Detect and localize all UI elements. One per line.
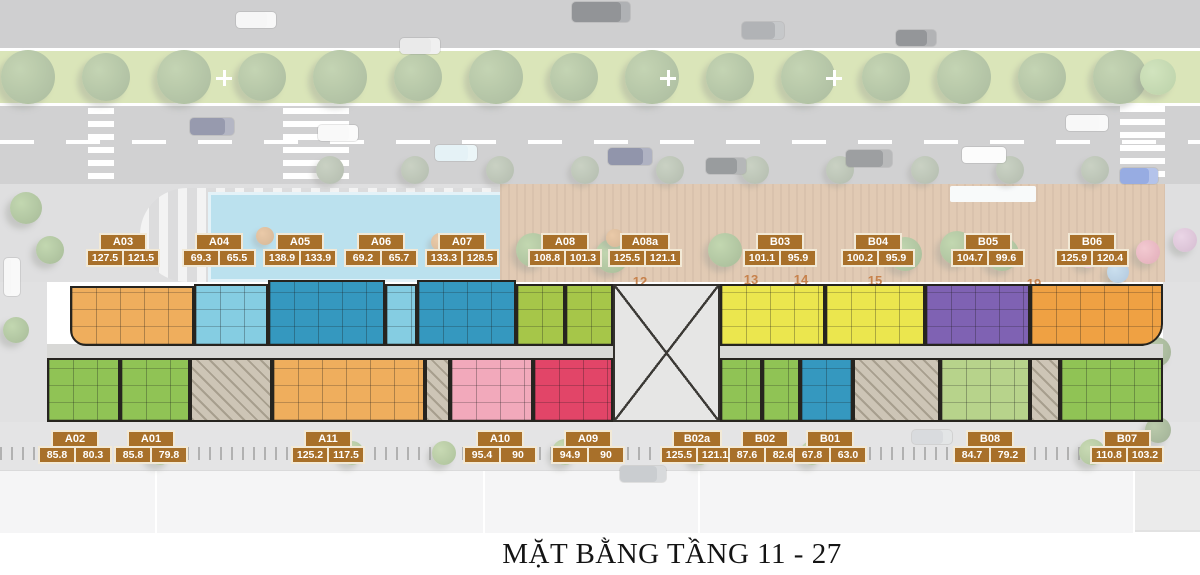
- plan-unit-b08: [940, 358, 1030, 422]
- sidewalk: [0, 282, 47, 430]
- unit-area-value: 84.7: [953, 446, 991, 464]
- unit-area-value: 67.8: [793, 446, 831, 464]
- unit-badge-b02: B0287.682.6: [728, 430, 802, 464]
- plan-unit-b03: [720, 284, 825, 346]
- plan-unit-b06: [1030, 284, 1163, 346]
- plan-unit-a11: [272, 358, 425, 422]
- unit-area-value: 104.7: [951, 249, 989, 267]
- tree-icon: [1, 50, 55, 104]
- tree-icon: [1018, 53, 1066, 101]
- tree-icon: [1136, 240, 1160, 264]
- road-marker-icon: [826, 70, 842, 86]
- unit-areas: 100.295.9: [841, 249, 915, 267]
- unit-area-value: 65.7: [380, 249, 418, 267]
- lane-dashes: [0, 140, 1200, 144]
- unit-areas: 85.879.8: [114, 446, 188, 464]
- unit-areas: 87.682.6: [728, 446, 802, 464]
- unit-area-value: 125.2: [291, 446, 329, 464]
- unit-area-value: 95.9: [877, 249, 915, 267]
- unit-areas: 95.490: [463, 446, 537, 464]
- building-block: [700, 471, 1135, 533]
- tree-icon: [708, 233, 742, 267]
- unit-areas: 69.265.7: [344, 249, 418, 267]
- unit-area-value: 85.8: [38, 446, 76, 464]
- unit-area-value: 95.4: [463, 446, 501, 464]
- bus-shelter: [950, 186, 1036, 202]
- unit-areas: 101.195.9: [743, 249, 817, 267]
- unit-area-value: 95.9: [779, 249, 817, 267]
- plan-unit-a08: [516, 284, 565, 346]
- unit-area-value: 125.9: [1055, 249, 1093, 267]
- unit-badge-b06: B06125.9120.4: [1055, 233, 1129, 267]
- palm-tree-icon: [656, 156, 684, 184]
- void-block: [613, 284, 720, 422]
- unit-badge-a08a: A08a125.5121.1: [608, 233, 682, 267]
- car-icon: [318, 125, 358, 141]
- building-block: [0, 471, 157, 533]
- unit-areas: 108.8101.3: [528, 249, 602, 267]
- car-icon: [236, 12, 276, 28]
- unit-areas: 138.9133.9: [263, 249, 337, 267]
- unit-badge-b03: B03101.195.9: [743, 233, 817, 267]
- tree-icon: [862, 53, 910, 101]
- unit-badge-a03: A03127.5121.5: [86, 233, 160, 267]
- unit-area-value: 101.3: [564, 249, 602, 267]
- plan-unit-b01: [800, 358, 853, 422]
- plan-unit-b02: [762, 358, 800, 422]
- unit-area-value: 117.5: [327, 446, 365, 464]
- unit-area-value: 80.3: [74, 446, 112, 464]
- building-block: [157, 471, 485, 533]
- unit-area-value: 120.4: [1091, 249, 1129, 267]
- tree-icon: [82, 53, 130, 101]
- page-title: MẶT BẰNG TẦNG 11 - 27: [502, 538, 841, 571]
- unit-areas: 85.880.3: [38, 446, 112, 464]
- unit-areas: 125.9120.4: [1055, 249, 1129, 267]
- plan-unit-a05: [268, 280, 385, 346]
- car-icon: [620, 466, 666, 482]
- unit-area-value: 125.5: [608, 249, 646, 267]
- car-icon: [400, 38, 440, 54]
- unit-area-value: 133.3: [425, 249, 463, 267]
- plan-unit-a08a: [565, 284, 613, 346]
- unit-badge-b05: B05104.799.6: [951, 233, 1025, 267]
- unit-area-value: 99.6: [987, 249, 1025, 267]
- plan-unit-b05: [925, 284, 1030, 346]
- unit-badge-a04: A0469.365.5: [182, 233, 256, 267]
- unit-badge-a02: A0285.880.3: [38, 430, 112, 464]
- tree-icon: [3, 317, 29, 343]
- unit-areas: 125.5121.1: [660, 446, 734, 464]
- unit-badge-b07: B07110.8103.2: [1090, 430, 1164, 464]
- unit-areas: 110.8103.2: [1090, 446, 1164, 464]
- palm-tree-icon: [486, 156, 514, 184]
- unit-badge-a10: A1095.490: [463, 430, 537, 464]
- car-icon: [1066, 115, 1108, 131]
- unit-badge-b01: B0167.863.0: [793, 430, 867, 464]
- unit-areas: 127.5121.5: [86, 249, 160, 267]
- unit-area-value: 65.5: [218, 249, 256, 267]
- plan-unit-a10: [450, 358, 533, 422]
- stair-core: [425, 358, 450, 422]
- unit-areas: 67.863.0: [793, 446, 867, 464]
- unit-area-value: 127.5: [86, 249, 124, 267]
- plan-unit-a07: [417, 280, 516, 346]
- car-icon: [190, 118, 234, 135]
- palm-tree-icon: [571, 156, 599, 184]
- unit-badge-b04: B04100.295.9: [841, 233, 915, 267]
- tree-icon: [937, 50, 991, 104]
- tree-icon: [10, 192, 42, 224]
- unit-area-value: 100.2: [841, 249, 879, 267]
- tree-icon: [1173, 228, 1197, 252]
- car-icon: [572, 2, 630, 22]
- unit-badge-a09: A0994.990: [551, 430, 625, 464]
- unit-area-value: 87.6: [728, 446, 766, 464]
- unit-areas: 84.779.2: [953, 446, 1027, 464]
- unit-area-value: 108.8: [528, 249, 566, 267]
- palm-tree-icon: [911, 156, 939, 184]
- unit-area-value: 69.2: [344, 249, 382, 267]
- unit-areas: 125.2117.5: [291, 446, 365, 464]
- tree-icon: [1093, 50, 1147, 104]
- unit-badge-b08: B0884.779.2: [953, 430, 1027, 464]
- tree-icon: [432, 441, 456, 465]
- plan-unit-a01: [120, 358, 190, 422]
- unit-area-value: 85.8: [114, 446, 152, 464]
- unit-areas: 133.3128.5: [425, 249, 499, 267]
- road-marker-icon: [660, 70, 676, 86]
- stair-core: [853, 358, 940, 422]
- unit-area-value: 90: [587, 446, 625, 464]
- unit-area-value: 125.5: [660, 446, 698, 464]
- unit-areas: 125.5121.1: [608, 249, 682, 267]
- stair-core: [1030, 358, 1060, 422]
- car-icon: [608, 148, 652, 165]
- unit-area-value: 128.5: [461, 249, 499, 267]
- stair-core: [190, 358, 272, 422]
- unit-area-value: 138.9: [263, 249, 301, 267]
- floor-plan-poster: 81213141519 A03127.5121.5A0469.365.5A051…: [0, 0, 1200, 575]
- unit-area-value: 110.8: [1090, 446, 1128, 464]
- plan-unit-a03: [70, 286, 194, 346]
- unit-area-value: 121.1: [644, 249, 682, 267]
- palm-tree-icon: [316, 156, 344, 184]
- car-icon: [962, 147, 1006, 163]
- car-icon: [912, 430, 952, 444]
- unit-area-value: 101.1: [743, 249, 781, 267]
- plan-unit-b02a: [720, 358, 762, 422]
- tree-icon: [550, 53, 598, 101]
- car-icon: [435, 145, 477, 161]
- buildings-row: [0, 470, 1200, 532]
- building-block: [485, 471, 700, 533]
- unit-badge-a05: A05138.9133.9: [263, 233, 337, 267]
- unit-area-value: 79.2: [989, 446, 1027, 464]
- tree-icon: [1140, 59, 1176, 95]
- unit-badge-a11: A11125.2117.5: [291, 430, 365, 464]
- palm-tree-icon: [401, 156, 429, 184]
- unit-area-value: 121.5: [122, 249, 160, 267]
- car-icon: [896, 30, 936, 46]
- unit-badge-a07: A07133.3128.5: [425, 233, 499, 267]
- unit-areas: 69.365.5: [182, 249, 256, 267]
- palm-tree-icon: [1081, 156, 1109, 184]
- car-icon: [846, 150, 892, 167]
- unit-badge-a08: A08108.8101.3: [528, 233, 602, 267]
- car-icon: [742, 22, 784, 39]
- plan-unit-b04: [825, 284, 925, 346]
- plan-unit-a09: [533, 358, 613, 422]
- unit-areas: 94.990: [551, 446, 625, 464]
- road-marker-icon: [216, 70, 232, 86]
- unit-area-value: 103.2: [1126, 446, 1164, 464]
- unit-badge-a01: A0185.879.8: [114, 430, 188, 464]
- tree-icon: [157, 50, 211, 104]
- tree-icon: [313, 50, 367, 104]
- car-icon: [1120, 168, 1158, 184]
- car-icon: [706, 158, 746, 174]
- unit-areas: 104.799.6: [951, 249, 1025, 267]
- unit-area-value: 90: [499, 446, 537, 464]
- car-icon: [4, 258, 20, 296]
- tree-icon: [469, 50, 523, 104]
- unit-area-value: 69.3: [182, 249, 220, 267]
- plan-unit-a06: [385, 284, 417, 346]
- tree-icon: [36, 236, 64, 264]
- tree-icon: [238, 53, 286, 101]
- tree-icon: [394, 53, 442, 101]
- plan-unit-a02: [47, 358, 120, 422]
- unit-area-value: 133.9: [299, 249, 337, 267]
- crosswalk: [88, 108, 114, 182]
- unit-area-value: 63.0: [829, 446, 867, 464]
- tree-icon: [706, 53, 754, 101]
- plan-unit-b07: [1060, 358, 1163, 422]
- unit-area-value: 94.9: [551, 446, 589, 464]
- unit-badge-a06: A0669.265.7: [344, 233, 418, 267]
- plan-unit-a04: [194, 284, 268, 346]
- unit-badge-b02a: B02a125.5121.1: [660, 430, 734, 464]
- unit-area-value: 79.8: [150, 446, 188, 464]
